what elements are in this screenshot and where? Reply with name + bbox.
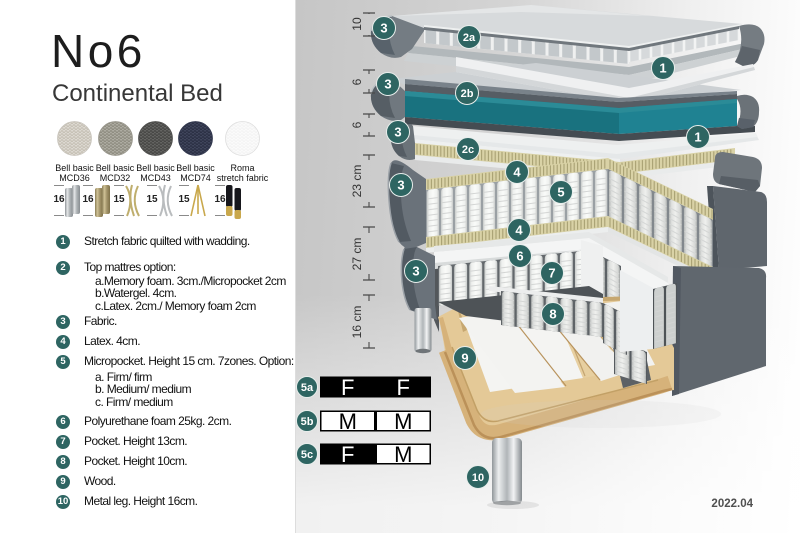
svg-text:M: M <box>394 409 412 434</box>
svg-text:2c: 2c <box>462 144 474 156</box>
svg-text:27 cm: 27 cm <box>350 238 364 271</box>
svg-text:10: 10 <box>472 472 484 484</box>
svg-text:4: 4 <box>513 165 521 180</box>
svg-text:6: 6 <box>350 121 364 128</box>
svg-text:10: 10 <box>350 17 364 31</box>
svg-text:5a: 5a <box>301 382 314 394</box>
svg-text:6: 6 <box>350 78 364 85</box>
svg-text:3: 3 <box>380 21 387 36</box>
svg-text:3: 3 <box>397 178 404 193</box>
svg-text:6: 6 <box>516 249 523 264</box>
svg-text:F: F <box>341 442 354 467</box>
svg-text:3: 3 <box>394 125 401 140</box>
svg-text:M: M <box>339 409 357 434</box>
svg-text:M: M <box>394 442 412 467</box>
svg-text:F: F <box>341 375 354 400</box>
svg-text:23 cm: 23 cm <box>350 165 364 198</box>
svg-text:2a: 2a <box>463 32 476 44</box>
svg-text:7: 7 <box>548 266 555 281</box>
svg-text:5b: 5b <box>301 416 314 428</box>
svg-text:16 cm: 16 cm <box>350 306 364 339</box>
svg-text:2022.04: 2022.04 <box>711 498 753 510</box>
svg-text:2b: 2b <box>461 88 474 100</box>
svg-text:3: 3 <box>384 77 391 92</box>
svg-text:8: 8 <box>549 307 556 322</box>
svg-text:5c: 5c <box>301 449 313 461</box>
svg-text:1: 1 <box>659 61 666 76</box>
svg-text:1: 1 <box>694 130 701 145</box>
svg-text:4: 4 <box>515 223 523 238</box>
svg-text:5: 5 <box>557 185 564 200</box>
svg-text:3: 3 <box>412 264 419 279</box>
svg-text:9: 9 <box>461 351 468 366</box>
svg-text:F: F <box>397 375 410 400</box>
